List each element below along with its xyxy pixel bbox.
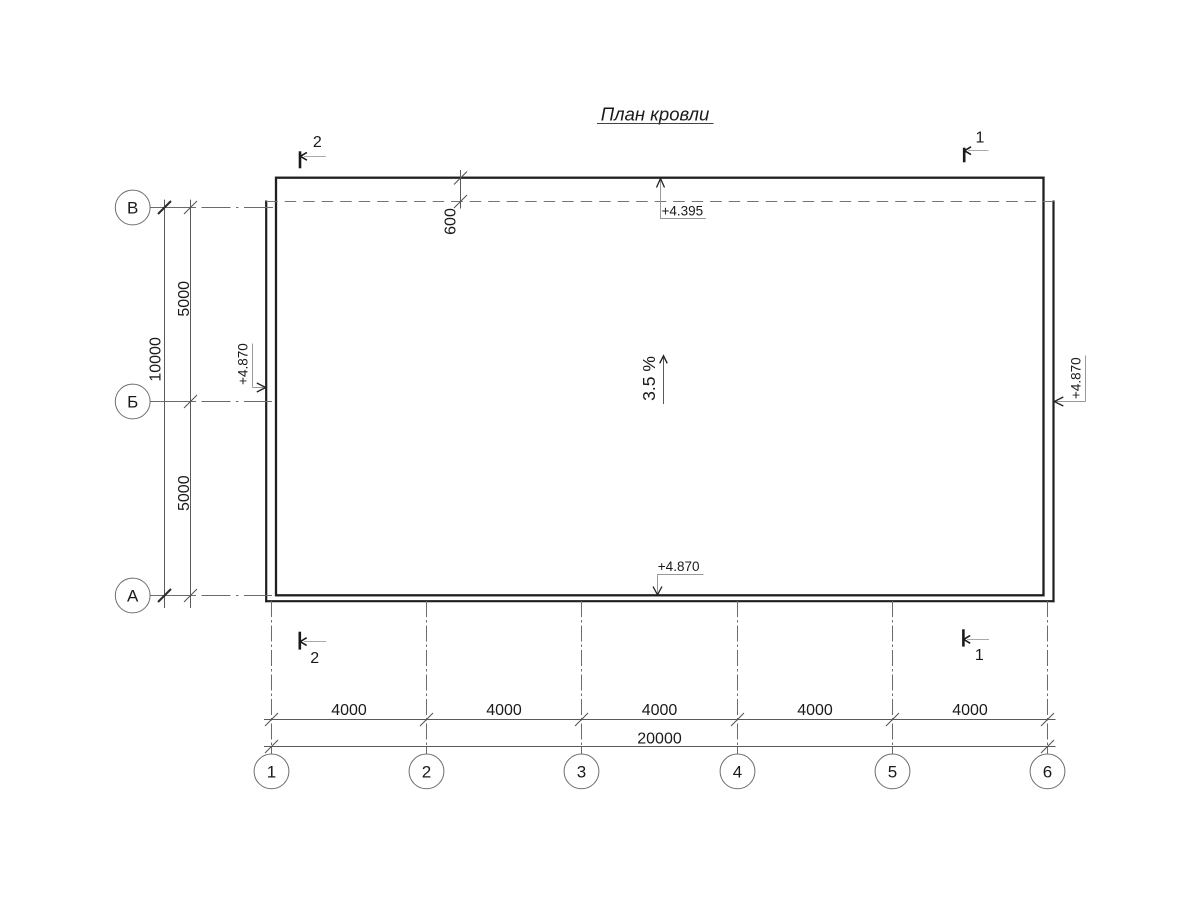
svg-text:5: 5	[888, 763, 897, 782]
svg-text:3: 3	[577, 763, 586, 782]
svg-text:В: В	[127, 199, 138, 218]
svg-text:4000: 4000	[486, 702, 522, 719]
svg-text:2: 2	[422, 763, 431, 782]
svg-text:+4.870: +4.870	[658, 559, 700, 574]
svg-text:План кровли: План кровли	[601, 104, 710, 125]
svg-text:1: 1	[976, 129, 985, 146]
svg-text:2: 2	[313, 134, 322, 151]
svg-text:А: А	[127, 587, 139, 606]
svg-text:1: 1	[267, 763, 276, 782]
svg-text:20000: 20000	[637, 731, 682, 748]
svg-text:4000: 4000	[331, 702, 367, 719]
svg-text:600: 600	[443, 208, 460, 235]
svg-text:+4.870: +4.870	[236, 343, 251, 385]
svg-text:4000: 4000	[952, 702, 988, 719]
svg-text:2: 2	[310, 650, 319, 667]
svg-text:+4.870: +4.870	[1068, 357, 1083, 399]
svg-text:Б: Б	[127, 393, 138, 412]
svg-text:4: 4	[733, 763, 742, 782]
svg-text:1: 1	[975, 647, 984, 664]
svg-text:6: 6	[1043, 763, 1052, 782]
svg-text:10000: 10000	[148, 337, 165, 382]
svg-text:5000: 5000	[176, 475, 193, 511]
svg-text:3.5 %: 3.5 %	[639, 356, 659, 401]
svg-text:5000: 5000	[176, 281, 193, 317]
svg-text:4000: 4000	[642, 702, 678, 719]
svg-text:4000: 4000	[797, 702, 833, 719]
svg-text:+4.395: +4.395	[662, 203, 704, 218]
